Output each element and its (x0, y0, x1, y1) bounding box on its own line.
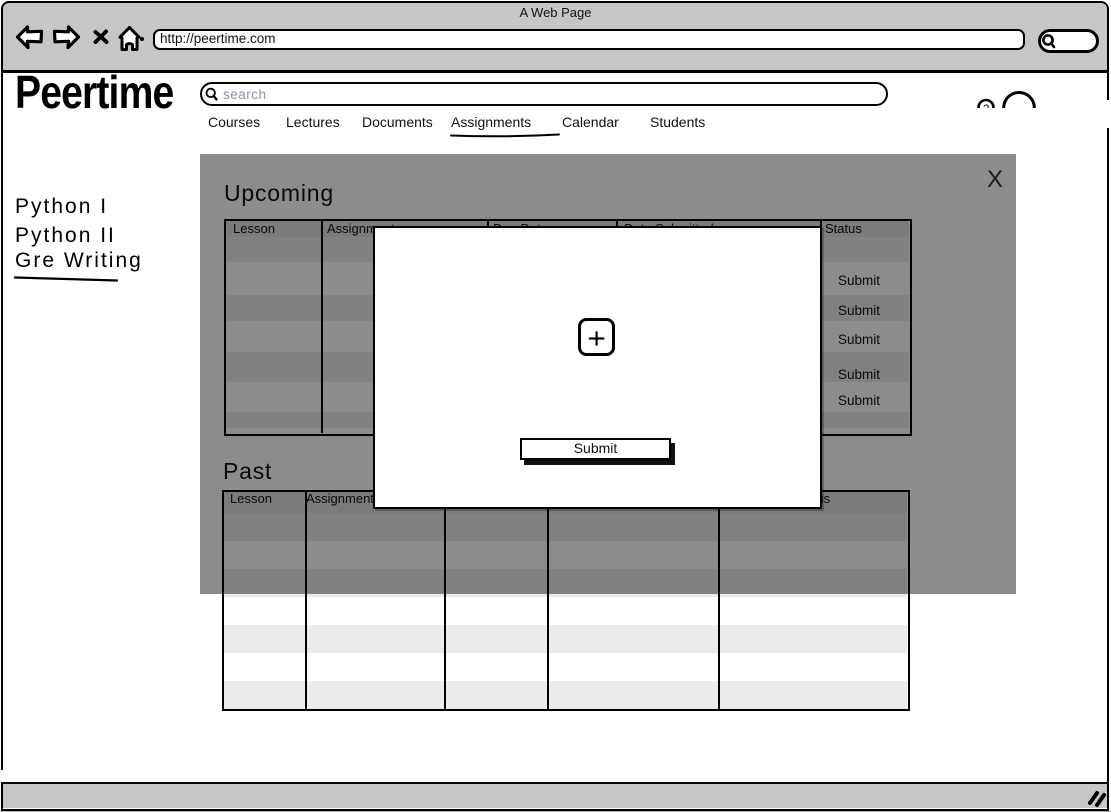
svg-text:?: ? (983, 103, 989, 108)
